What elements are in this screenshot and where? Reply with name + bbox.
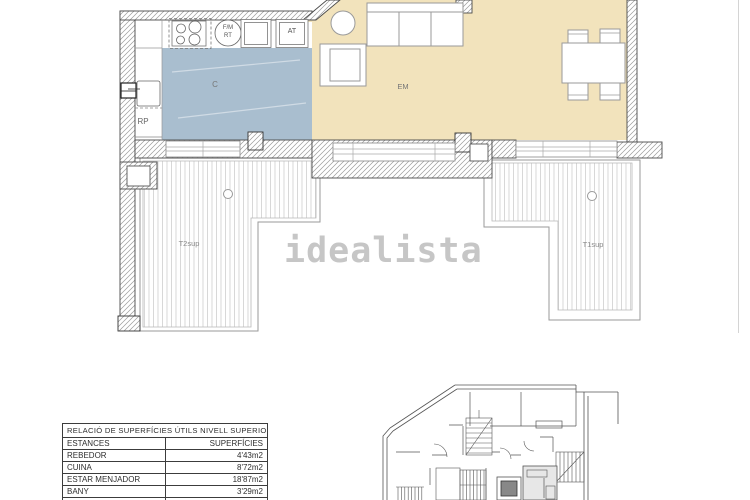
- duct-box: [470, 144, 488, 161]
- column-header-area: SUPERFÍCIES: [165, 438, 268, 450]
- table-row: ESTAR MENJADOR 18'87m2: [63, 474, 268, 486]
- room-name: ESTAR MENJADOR: [63, 474, 166, 486]
- table-row: BANY 3'29m2: [63, 486, 268, 498]
- appliance-label-line1: F/M: [214, 25, 242, 31]
- appliance-label-line2: RT: [214, 33, 242, 39]
- living-dining-label: EM: [392, 83, 414, 91]
- kitchen-floor: [162, 48, 312, 140]
- table-header-row: ESTANCES SUPERFÍCIES: [63, 438, 268, 450]
- side-table: [331, 11, 355, 35]
- room-name: REBEDOR: [63, 450, 166, 462]
- key-plan-shaded-room: [523, 466, 557, 500]
- wall-bottom-right-stub: [492, 140, 516, 158]
- armchair: [320, 44, 366, 86]
- pillar: [455, 133, 471, 152]
- window-middle: [333, 143, 455, 161]
- appliance-box: [241, 20, 271, 48]
- sink: [137, 81, 160, 106]
- key-plan-stair-bottom: [396, 468, 486, 500]
- floor-plan-page: C EM RP AT F/M RT T2sup T1sup idealista …: [0, 0, 750, 500]
- wall-right-foot: [617, 142, 662, 158]
- kitchen-label: C: [208, 81, 222, 89]
- hall-label: RP: [132, 118, 154, 126]
- wall-left-foot: [118, 316, 140, 331]
- key-plan: [383, 385, 618, 500]
- terrace-right-label: T1sup: [572, 241, 614, 249]
- key-plan-stair-right: [556, 452, 584, 482]
- sofa: [367, 3, 463, 46]
- table-title-row: RELACIÓ DE SUPERFÍCIES ÚTILS NIVELL SUPE…: [63, 424, 268, 438]
- wall-top: [120, 11, 312, 20]
- elevator-cab: [501, 481, 517, 496]
- closet-label: AT: [276, 28, 308, 35]
- areas-table: RELACIÓ DE SUPERFÍCIES ÚTILS NIVELL SUPE…: [62, 423, 268, 500]
- room-area: 18'87m2: [165, 474, 268, 486]
- table-row: CUINA 8'72m2: [63, 462, 268, 474]
- meter-box: [121, 83, 136, 98]
- dining-table: [562, 43, 625, 83]
- key-plan-outline: [383, 385, 618, 500]
- column-header-room: ESTANCES: [63, 438, 166, 450]
- room-area: 8'72m2: [165, 462, 268, 474]
- terrace-left-label: T2sup: [168, 240, 210, 248]
- room-area: 3'29m2: [165, 486, 268, 498]
- room-name: CUINA: [63, 462, 166, 474]
- drain-icon: [588, 192, 597, 201]
- table-row: REBEDOR 4'43m2: [63, 450, 268, 462]
- idealista-watermark: idealista: [284, 231, 483, 271]
- window-terrace-right: [516, 141, 617, 157]
- cooktop-outline: [169, 19, 211, 49]
- chimney-flue: [127, 166, 150, 186]
- wall-right: [627, 0, 637, 142]
- door-arcs: [434, 441, 534, 459]
- room-name: BANY: [63, 486, 166, 498]
- table-title: RELACIÓ DE SUPERFÍCIES ÚTILS NIVELL SUPE…: [63, 424, 268, 438]
- drain-icon: [224, 190, 233, 199]
- room-area: 4'43m2: [165, 450, 268, 462]
- burner-icons: [177, 21, 202, 45]
- pillar: [248, 132, 263, 150]
- terrace-right-decking: [492, 163, 632, 310]
- key-plan-window: [536, 421, 562, 428]
